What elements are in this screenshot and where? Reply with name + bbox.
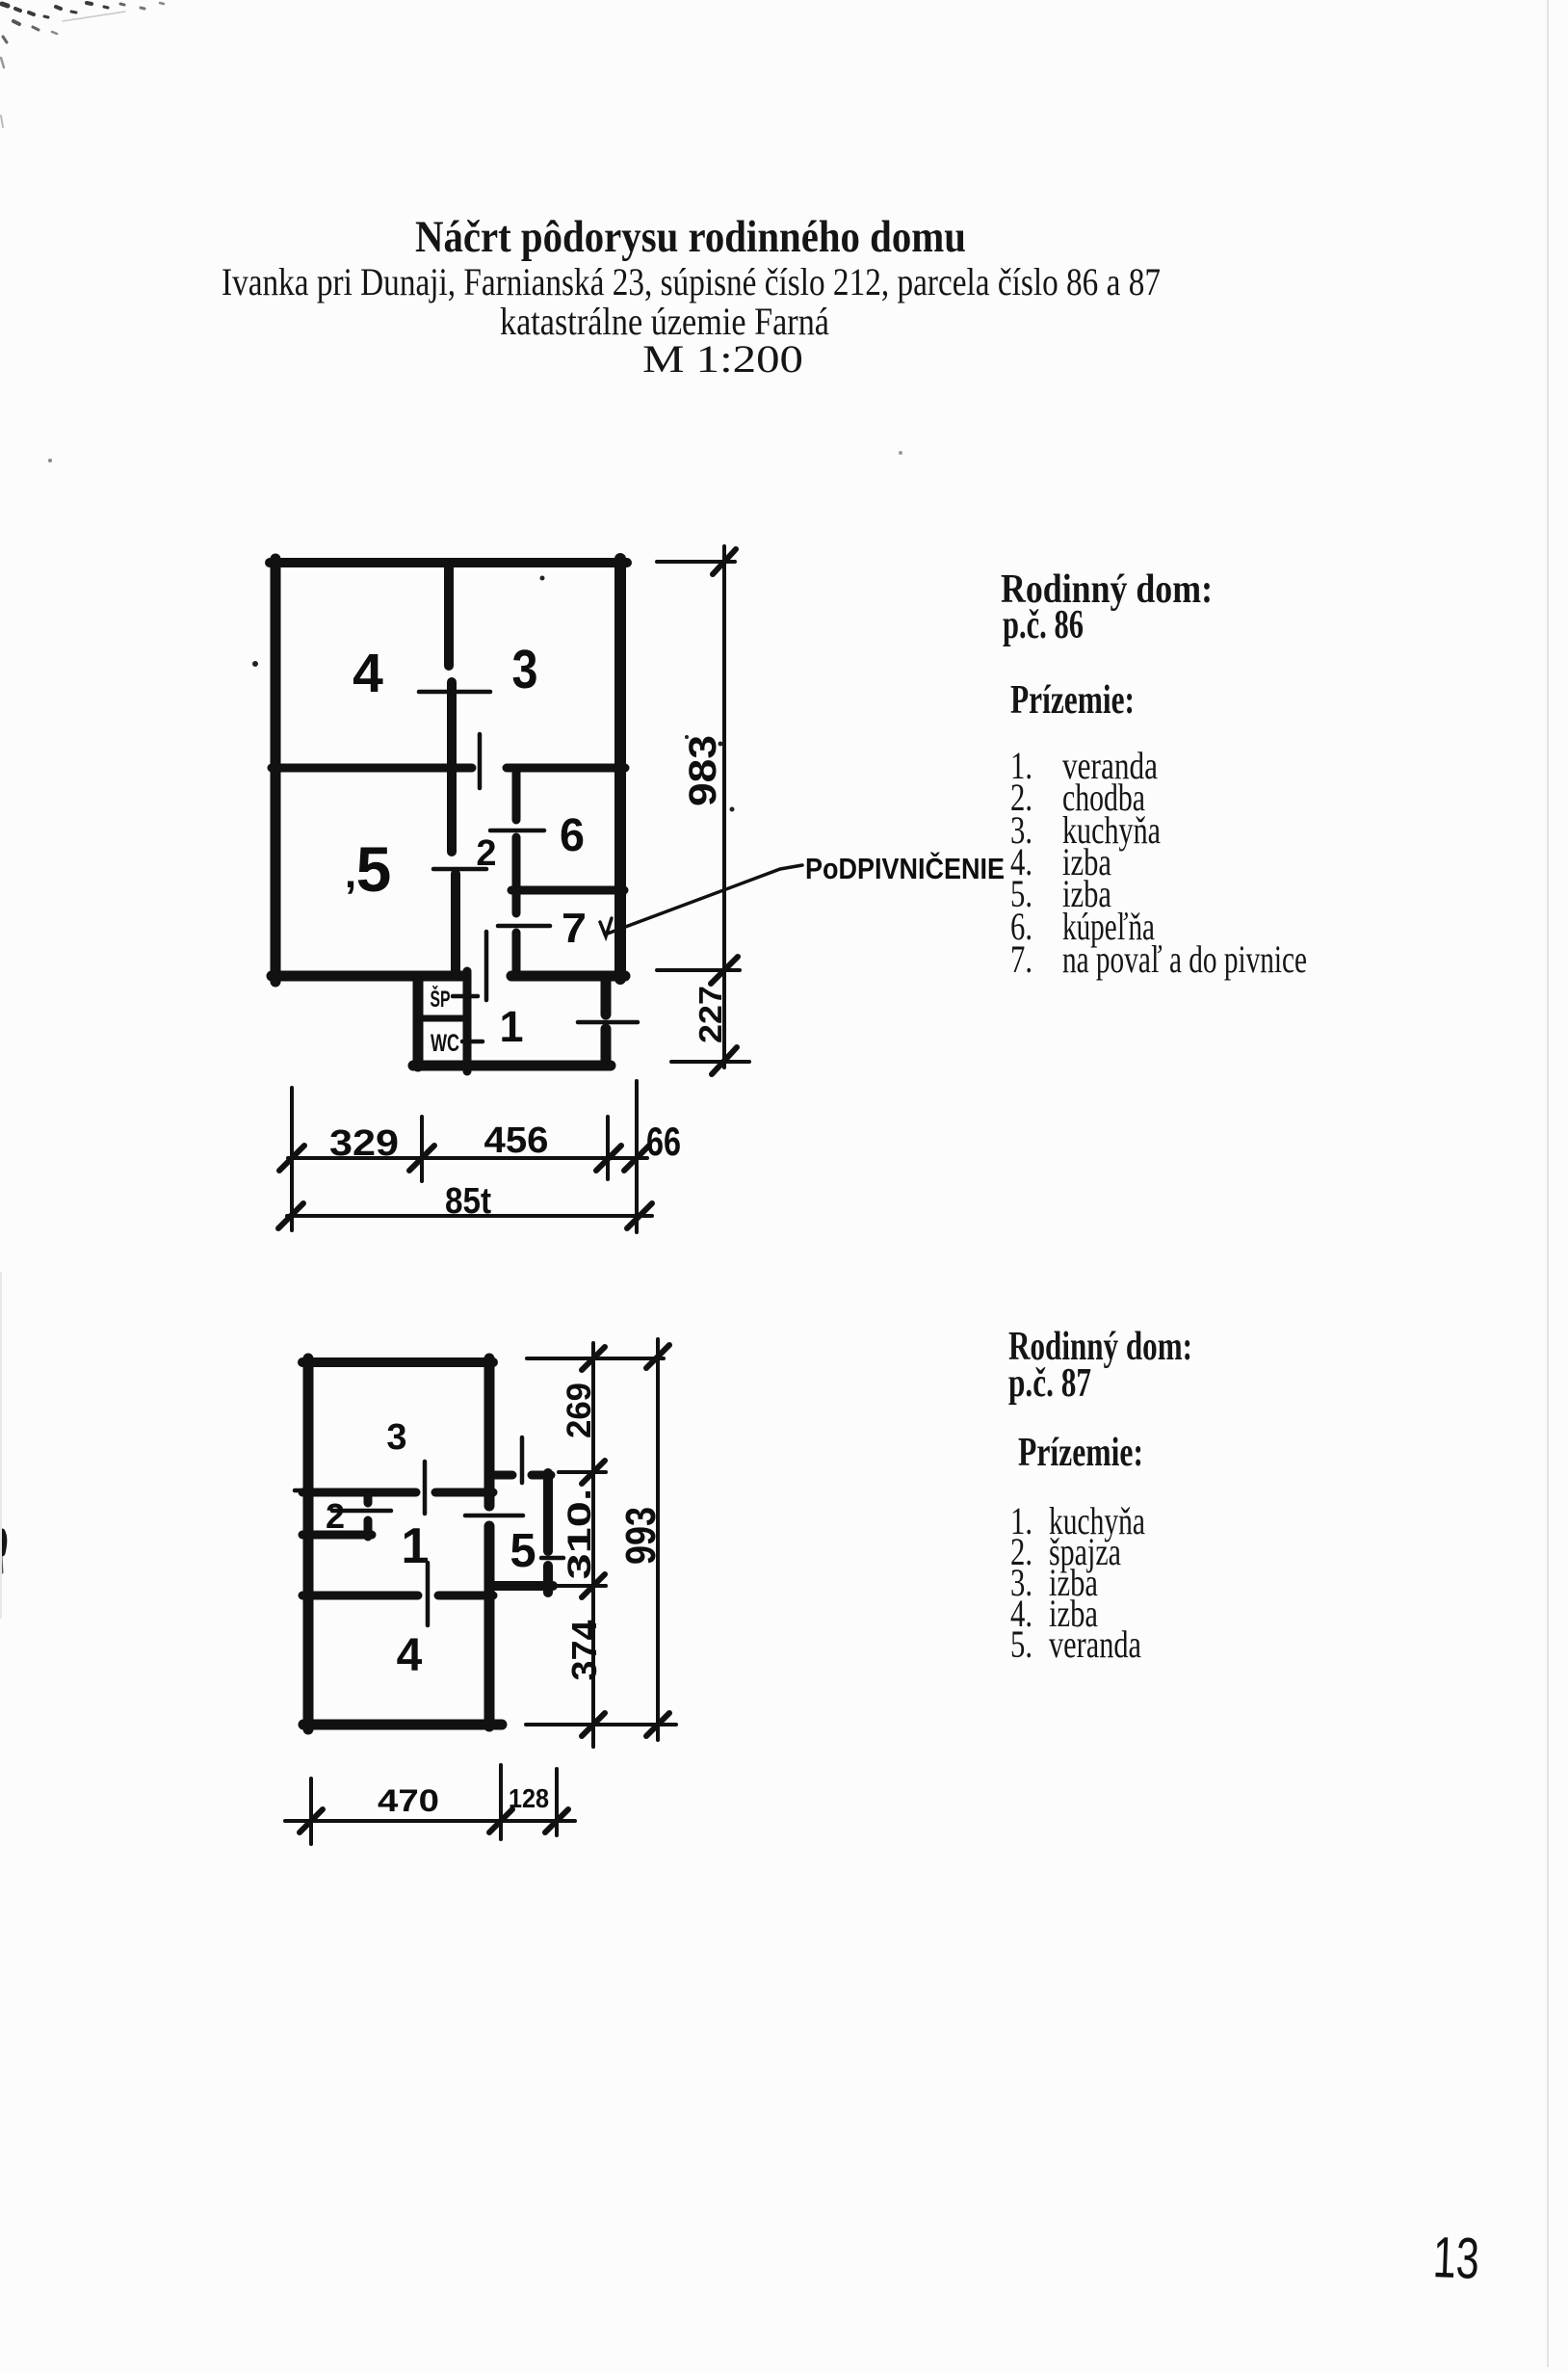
- svg-text:1: 1: [402, 1518, 430, 1574]
- svg-text:2: 2: [476, 833, 496, 874]
- svg-text:983: 983: [682, 735, 724, 806]
- svg-text:ŠP: ŠP: [431, 986, 451, 1013]
- svg-text:227: 227: [693, 986, 728, 1043]
- svg-text:p.č. 87: p.č. 87: [1008, 1361, 1091, 1406]
- svg-text:WC: WC: [431, 1030, 459, 1057]
- svg-text:66: 66: [646, 1119, 681, 1164]
- svg-text:1: 1: [499, 1002, 523, 1051]
- svg-text:310.: 310.: [562, 1489, 598, 1580]
- svg-text:5: 5: [510, 1525, 536, 1577]
- svg-text:Ivanka pri Dunaji, Farnianská: Ivanka pri Dunaji, Farnianská 23, súpisn…: [222, 260, 1161, 303]
- svg-text:470: 470: [378, 1783, 439, 1818]
- svg-text:6: 6: [560, 810, 585, 861]
- svg-text:5.: 5.: [1010, 1622, 1032, 1666]
- svg-text:329: 329: [329, 1123, 399, 1164]
- svg-text:374: 374: [564, 1621, 604, 1681]
- svg-text:85t: 85t: [445, 1181, 491, 1222]
- svg-text:PoDPIVNIČENIE: PoDPIVNIČENIE: [805, 851, 1005, 885]
- svg-text:4: 4: [353, 643, 383, 704]
- svg-text:4: 4: [397, 1630, 423, 1681]
- svg-text:5: 5: [356, 833, 392, 905]
- svg-text:Náčrt pôdorysu rodinného domu: Náčrt pôdorysu rodinného domu: [415, 212, 966, 262]
- svg-text:7: 7: [562, 905, 587, 952]
- svg-text:M 1:200: M 1:200: [642, 337, 803, 381]
- svg-text:p.č. 86: p.č. 86: [1003, 603, 1084, 647]
- svg-text:na povaľ a do pivnice: na povaľ a do pivnice: [1062, 937, 1307, 981]
- svg-text:2: 2: [326, 1496, 345, 1536]
- svg-text:Prízemie:: Prízemie:: [1010, 678, 1135, 723]
- svg-text:3: 3: [512, 639, 538, 700]
- svg-text:,: ,: [345, 850, 356, 897]
- svg-text:993: 993: [617, 1507, 665, 1565]
- svg-text:128: 128: [509, 1783, 549, 1813]
- svg-text:veranda: veranda: [1049, 1622, 1141, 1666]
- svg-text:13: 13: [1432, 2225, 1480, 2291]
- svg-text:456: 456: [484, 1120, 549, 1161]
- svg-text:3: 3: [386, 1417, 406, 1458]
- svg-text:7.: 7.: [1010, 937, 1032, 981]
- svg-text:Prízemie:: Prízemie:: [1018, 1431, 1143, 1475]
- svg-text:269: 269: [561, 1383, 598, 1438]
